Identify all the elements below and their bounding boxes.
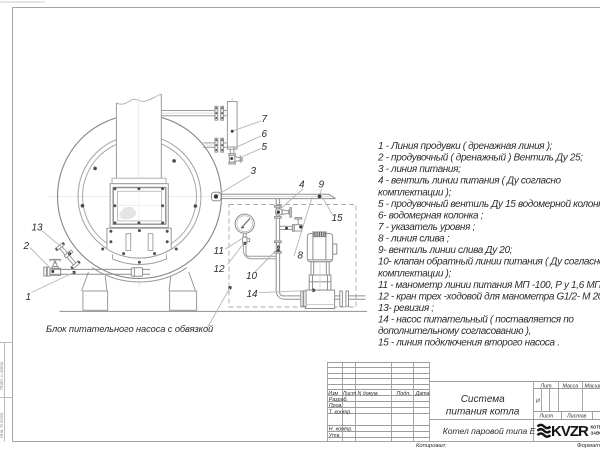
svg-text:3 - линия питания;: 3 - линия питания; — [378, 164, 461, 175]
svg-text:4: 4 — [299, 180, 305, 191]
svg-text:Котел паровой типа Е: Котел паровой типа Е — [443, 426, 536, 436]
svg-text:N докум.: N докум. — [358, 391, 379, 397]
svg-text:Масшта: Масшта — [585, 383, 600, 389]
svg-text:Дата: Дата — [415, 391, 430, 397]
svg-text:15: 15 — [332, 213, 344, 224]
svg-text:14: 14 — [247, 289, 259, 300]
svg-text:Лит.: Лит. — [540, 383, 553, 389]
svg-text:Масса: Масса — [563, 383, 579, 389]
svg-text:13- ревизия ;: 13- ревизия ; — [378, 303, 434, 314]
svg-text:11 - манометр линии питания М: 11 - манометр линии питания МП -100, Р у… — [378, 280, 600, 291]
svg-text:Блок питательного насоса с: Блок питательного насоса с обвязкой — [46, 324, 213, 334]
svg-text:комплектации );: комплектации ); — [378, 268, 452, 279]
svg-text:11: 11 — [214, 246, 224, 257]
svg-text:12: 12 — [214, 264, 226, 275]
svg-text:Т. контр.: Т. контр. — [329, 409, 352, 415]
svg-text:4 - вентиль линии питания (: 4 - вентиль линии питания ( Ду согласно — [378, 176, 562, 187]
svg-text:13: 13 — [32, 223, 44, 234]
svg-text:9: 9 — [319, 180, 325, 191]
svg-text:5: 5 — [262, 142, 268, 153]
svg-text:Утв.: Утв. — [329, 433, 341, 439]
svg-text:Н. контр.: Н. контр. — [329, 427, 353, 433]
svg-text:12 - кран трех -ходовой для м: 12 - кран трех -ходовой для манометра G1… — [378, 291, 600, 302]
svg-text:И: И — [536, 399, 540, 405]
svg-text:1: 1 — [26, 292, 32, 303]
svg-text:2: 2 — [23, 241, 30, 252]
svg-text:Подп.: Подп. — [397, 391, 411, 397]
svg-text:7 - указатель уровня ;: 7 - указатель уровня ; — [378, 222, 475, 233]
svg-text:3: 3 — [251, 166, 257, 177]
svg-text:6- водомерная колонка ;: 6- водомерная колонка ; — [378, 210, 484, 221]
svg-text:КОТЕЛЬН: КОТЕЛЬН — [591, 425, 600, 430]
svg-text:10: 10 — [246, 271, 258, 282]
svg-text:Лист: Лист — [342, 391, 357, 397]
svg-text:комплектации );: комплектации ); — [378, 187, 452, 198]
svg-text:8: 8 — [298, 251, 304, 262]
svg-text:Пров.: Пров. — [329, 403, 343, 409]
svg-text:9- вентиль линии слива Ду 20;: 9- вентиль линии слива Ду 20; — [378, 245, 513, 256]
svg-text:Подп. и дата: Подп. и дата — [0, 361, 4, 390]
svg-text:Лист: Лист — [539, 414, 554, 420]
svg-text:2 - продувочный ( дренажный: 2 - продувочный ( дренажный ) Вентиль Ду… — [377, 153, 583, 164]
svg-text:Листов: Листов — [566, 414, 587, 420]
svg-text:ЗАВОД Р: ЗАВОД Р — [591, 431, 600, 436]
svg-text:KVZR: KVZR — [551, 423, 589, 440]
svg-text:Система: Система — [461, 394, 505, 405]
svg-text:14 - насос питательный ( пос: 14 - насос питательный ( поставляется по — [378, 315, 574, 326]
svg-text:10- клапан обратный линии пит: 10- клапан обратный линии питания ( Ду с… — [378, 256, 600, 268]
svg-text:Копировал:: Копировал: — [416, 443, 447, 449]
svg-text:Изм: Изм — [328, 391, 338, 397]
svg-text:5 - продувочный вентиль Ду 15: 5 - продувочный вентиль Ду 15 водомерной… — [378, 199, 600, 210]
svg-text:6: 6 — [262, 129, 268, 140]
svg-text:питания котла: питания котла — [446, 407, 520, 418]
svg-text:15 - линия подключения второг: 15 - линия подключения второго насоса . — [378, 338, 560, 349]
svg-text:Формат: Формат — [577, 443, 600, 449]
svg-text:8 - линия слива ;: 8 - линия слива ; — [378, 234, 450, 245]
svg-text:Инв. N подл.: Инв. N подл. — [0, 412, 4, 438]
svg-text:7: 7 — [262, 114, 268, 125]
svg-text:дополнительному согласованию ): дополнительному согласованию ), — [378, 326, 531, 337]
svg-text:1 - Линия продувки ( дренажн: 1 - Линия продувки ( дренажная линия ); — [378, 141, 553, 152]
